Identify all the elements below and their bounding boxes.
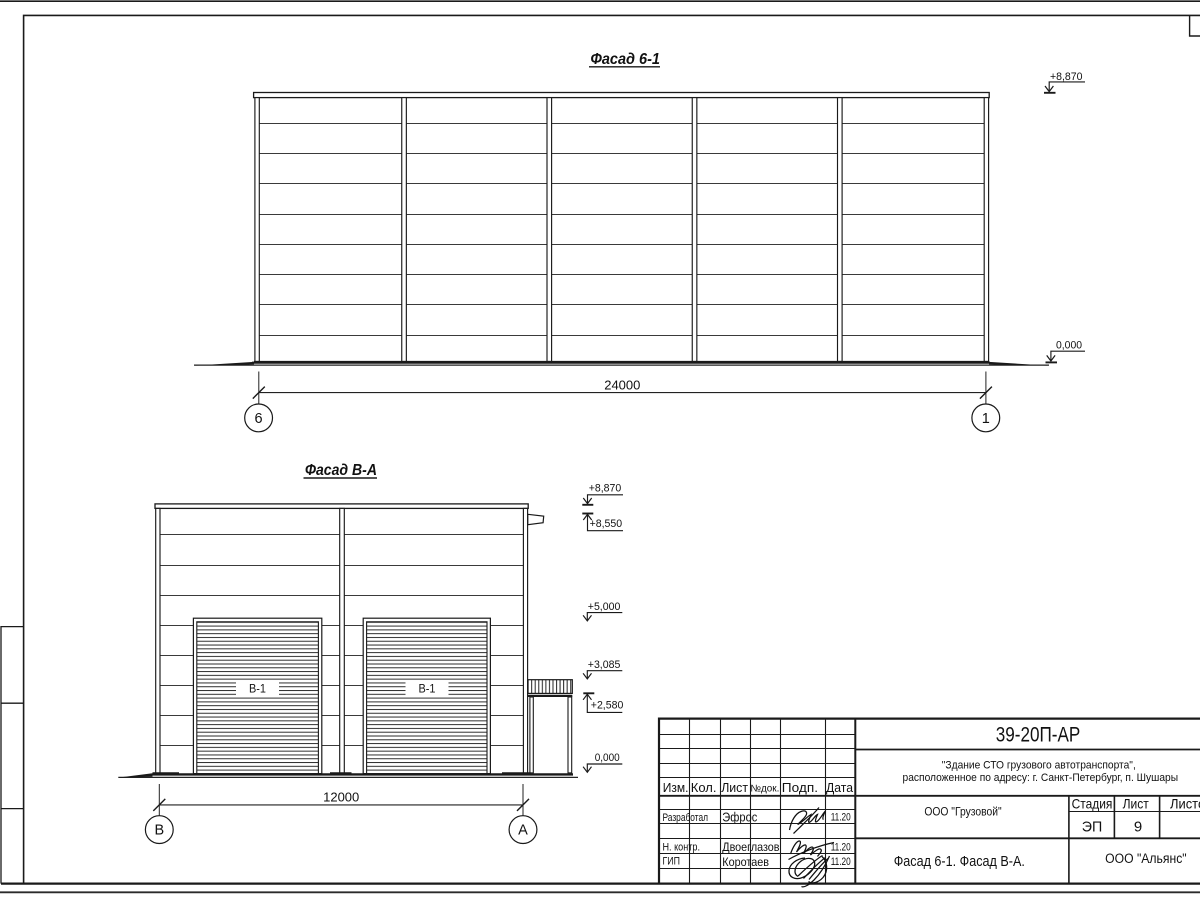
svg-text:9: 9 xyxy=(1134,818,1142,835)
svg-text:+2,580: +2,580 xyxy=(591,699,624,711)
svg-text:В-1: В-1 xyxy=(419,682,436,695)
svg-text:Разработал: Разработал xyxy=(663,812,709,824)
svg-text:расположенное по адресу: г. Са: расположенное по адресу: г. Санкт-Петерб… xyxy=(903,772,1179,784)
svg-text:Двоеглазов: Двоеглазов xyxy=(722,840,779,854)
svg-text:"Здание СТО грузового автотран: "Здание СТО грузового автотранспорта", xyxy=(942,760,1136,772)
svg-text:Стадия: Стадия xyxy=(1072,797,1113,812)
svg-text:Дата: Дата xyxy=(826,780,854,795)
svg-text:0,000: 0,000 xyxy=(1056,340,1082,352)
svg-text:6: 6 xyxy=(255,411,263,427)
svg-text:1: 1 xyxy=(982,411,990,427)
svg-text:Коротаев: Коротаев xyxy=(722,855,769,869)
svg-text:Эфрос: Эфрос xyxy=(722,810,757,824)
svg-text:В: В xyxy=(154,823,164,839)
svg-text:А: А xyxy=(518,823,528,839)
svg-text:0,000: 0,000 xyxy=(595,752,620,764)
svg-text:+8,550: +8,550 xyxy=(590,518,623,530)
svg-text:11.20: 11.20 xyxy=(831,856,851,868)
svg-text:Фасад 6-1: Фасад 6-1 xyxy=(591,51,661,68)
svg-text:39-20П-АР: 39-20П-АР xyxy=(996,723,1081,746)
svg-text:ООО "Грузовой": ООО "Грузовой" xyxy=(924,804,1001,818)
svg-text:+3,085: +3,085 xyxy=(588,659,621,671)
svg-text:ЭП: ЭП xyxy=(1082,819,1103,836)
svg-text:Листов: Листов xyxy=(1170,797,1200,812)
svg-text:Кол.: Кол. xyxy=(691,780,717,795)
svg-text:11.20: 11.20 xyxy=(831,812,851,824)
svg-text:В-1: В-1 xyxy=(249,682,266,695)
svg-text:Н. контр.: Н. контр. xyxy=(663,841,701,853)
svg-text:№док.: №док. xyxy=(750,783,779,794)
svg-text:+8,870: +8,870 xyxy=(1050,71,1083,83)
svg-text:Фасад В-А: Фасад В-А xyxy=(305,462,377,479)
svg-text:+8,870: +8,870 xyxy=(589,483,622,495)
svg-text:Подп.: Подп. xyxy=(782,780,818,795)
svg-text:Лист: Лист xyxy=(1123,797,1150,812)
svg-text:+5,000: +5,000 xyxy=(588,601,621,613)
svg-text:Изм.: Изм. xyxy=(663,780,689,795)
svg-text:24000: 24000 xyxy=(604,377,640,392)
svg-text:Лист: Лист xyxy=(721,780,748,795)
svg-text:ООО "Альянс": ООО "Альянс" xyxy=(1105,851,1187,867)
svg-text:ГИП: ГИП xyxy=(663,856,681,868)
svg-text:12000: 12000 xyxy=(323,790,359,805)
svg-text:Фасад 6-1. Фасад В-А.: Фасад 6-1. Фасад В-А. xyxy=(894,853,1025,870)
